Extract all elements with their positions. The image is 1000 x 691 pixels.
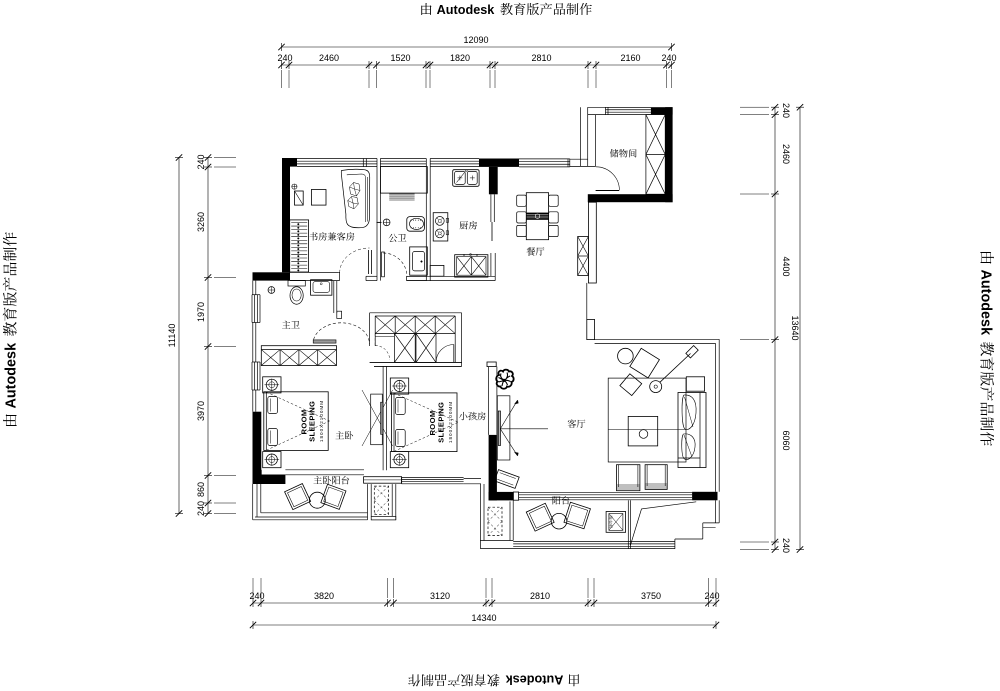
svg-text:Autodesk: Autodesk	[437, 3, 496, 17]
svg-text:Autodesk: Autodesk	[505, 672, 564, 686]
svg-text:3120: 3120	[430, 591, 450, 601]
svg-text:240: 240	[781, 103, 791, 118]
svg-text:6060: 6060	[781, 430, 791, 450]
svg-text:ROOM: ROOM	[428, 410, 437, 435]
svg-text:4400: 4400	[781, 256, 791, 276]
svg-text:860: 860	[196, 482, 206, 497]
svg-text:3970: 3970	[196, 401, 206, 421]
svg-text:240: 240	[781, 538, 791, 553]
svg-text:1520: 1520	[390, 53, 410, 63]
svg-text:240: 240	[196, 154, 206, 169]
svg-text:240: 240	[704, 591, 719, 601]
svg-text:1800X2100MM: 1800X2100MM	[448, 401, 453, 443]
svg-text:SLEEPING: SLEEPING	[436, 402, 445, 443]
svg-text:1820: 1820	[450, 53, 470, 63]
svg-text:240: 240	[277, 53, 292, 63]
svg-text:2460: 2460	[319, 53, 339, 63]
svg-text:240: 240	[249, 591, 264, 601]
svg-text:2810: 2810	[531, 53, 551, 63]
svg-text:11140: 11140	[167, 324, 177, 348]
svg-text:1800X2100MM: 1800X2100MM	[319, 400, 324, 442]
svg-text:2810: 2810	[530, 591, 550, 601]
svg-text:3750: 3750	[641, 591, 661, 601]
svg-text:1970: 1970	[196, 302, 206, 322]
svg-text:13640: 13640	[790, 315, 800, 340]
svg-text:3260: 3260	[196, 212, 206, 232]
svg-text:2160: 2160	[620, 53, 640, 63]
svg-text:ROOM: ROOM	[299, 409, 308, 434]
svg-text:12090: 12090	[463, 35, 488, 45]
svg-text:3820: 3820	[314, 591, 334, 601]
svg-text:240: 240	[661, 53, 676, 63]
svg-text:240: 240	[196, 501, 206, 516]
svg-text:Autodesk: Autodesk	[978, 270, 994, 337]
svg-text:14340: 14340	[471, 613, 496, 623]
svg-text:2460: 2460	[781, 144, 791, 164]
svg-text:SLEEPING: SLEEPING	[308, 401, 317, 442]
svg-text:Autodesk: Autodesk	[4, 342, 20, 409]
